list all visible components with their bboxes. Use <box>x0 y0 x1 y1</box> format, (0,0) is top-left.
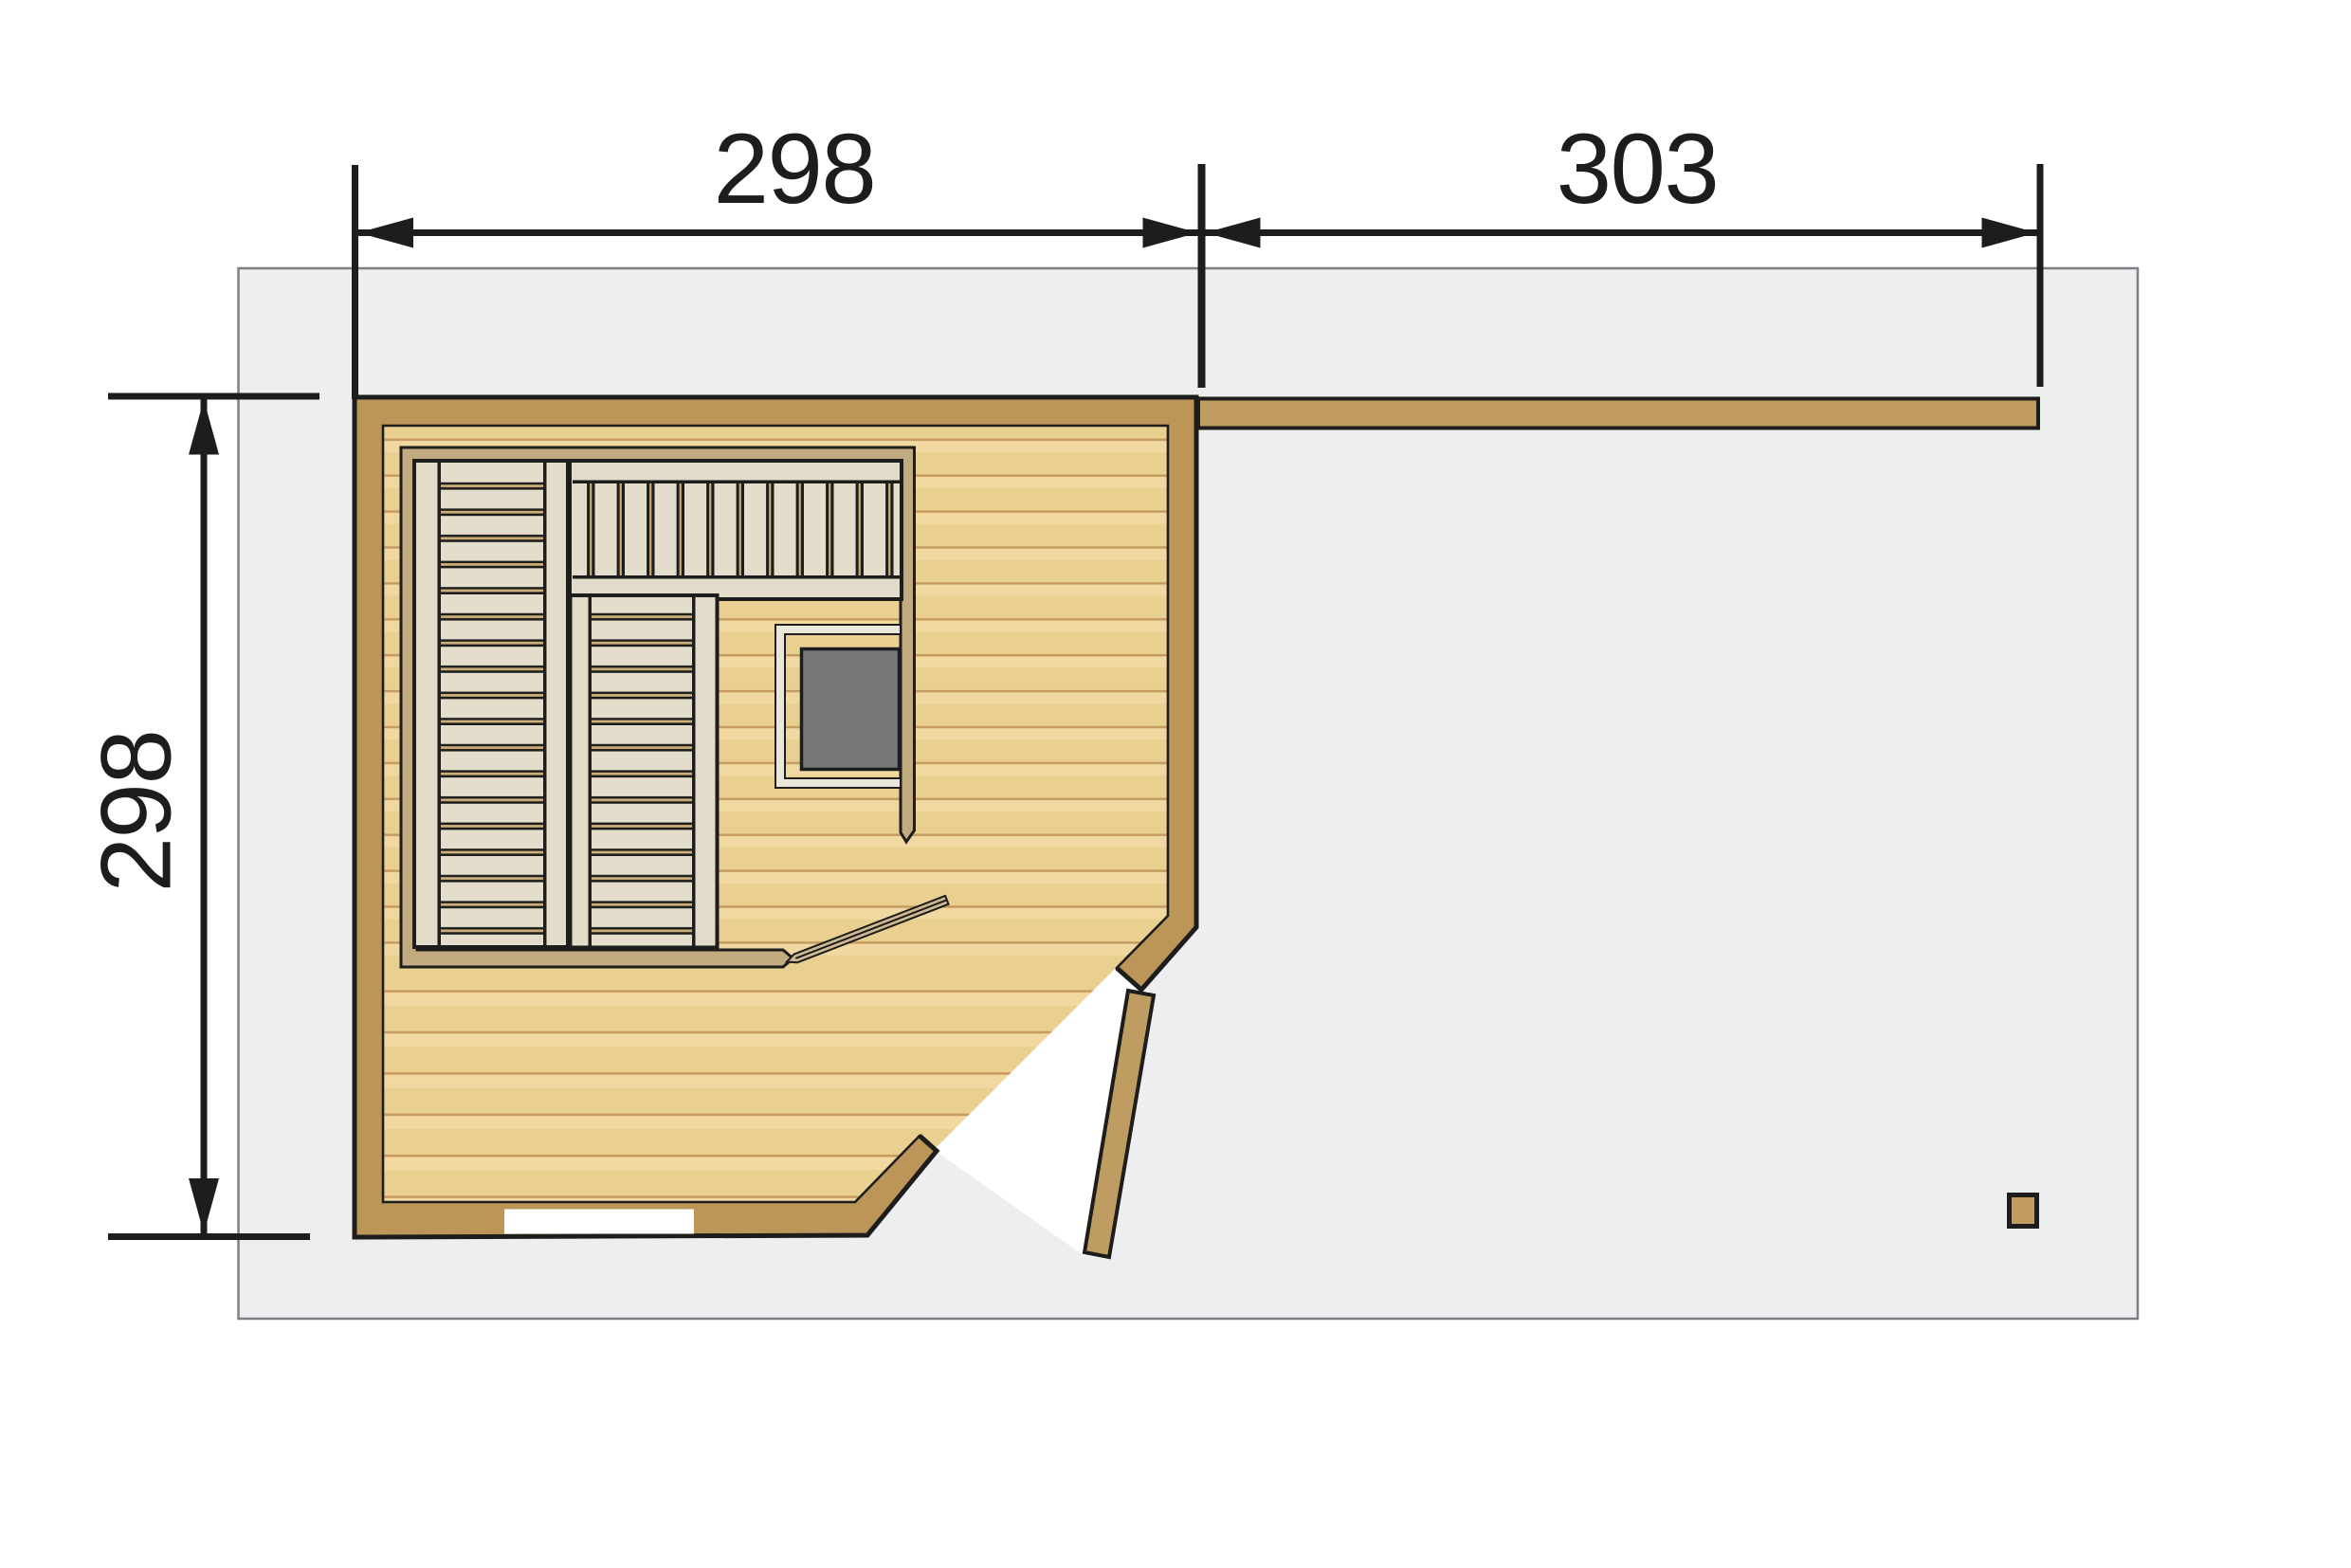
svg-text:303: 303 <box>1557 114 1719 225</box>
svg-text:298: 298 <box>714 114 876 225</box>
svg-text:298: 298 <box>82 731 192 893</box>
